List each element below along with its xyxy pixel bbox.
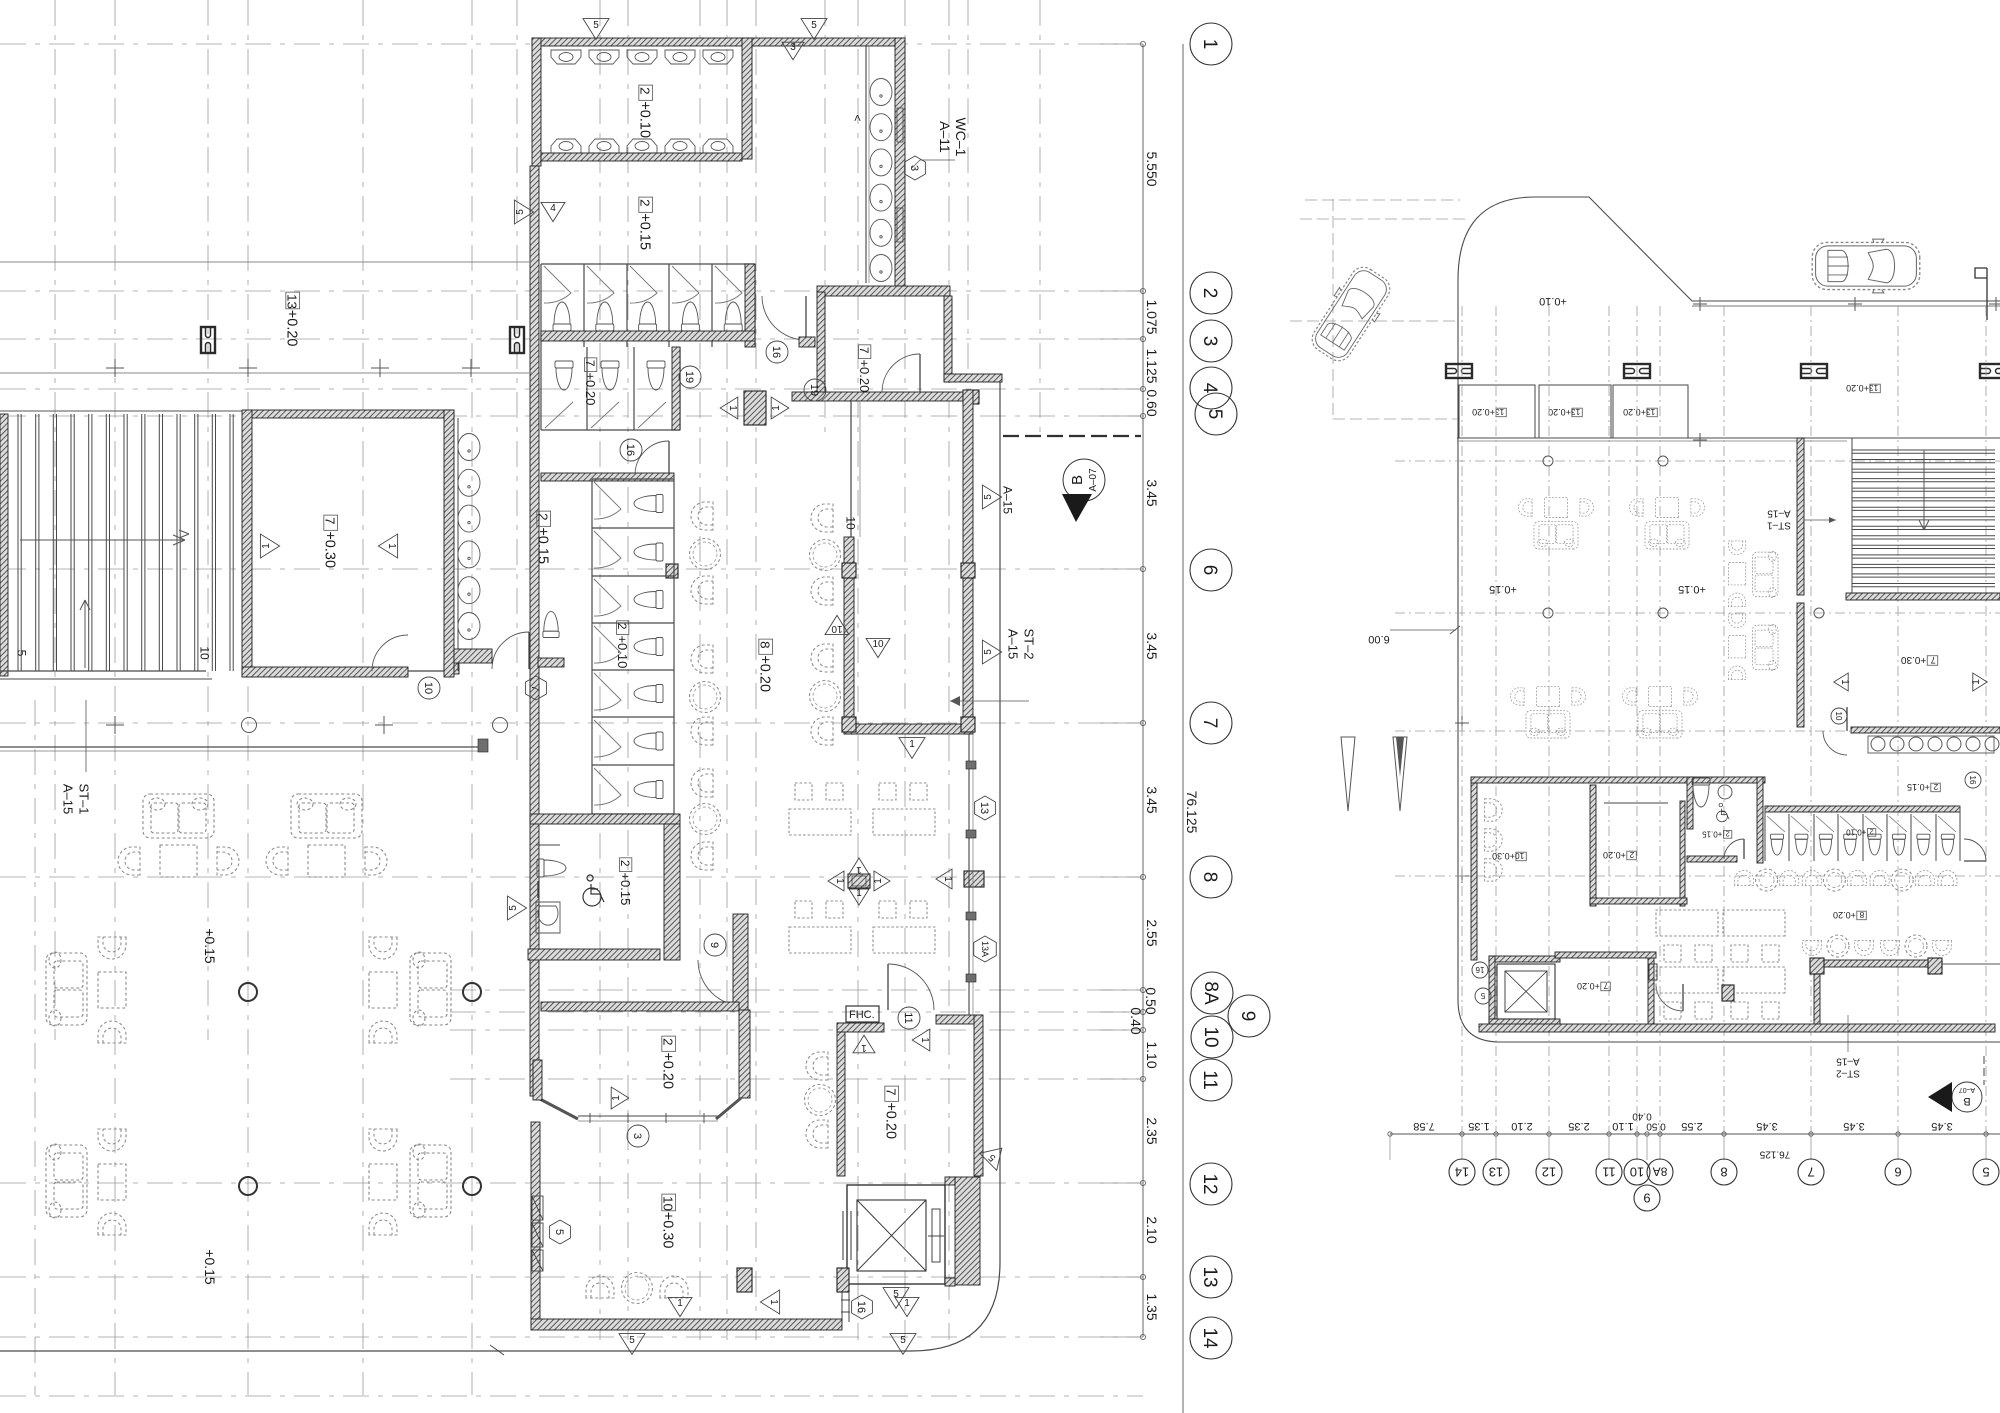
svg-text:A–07: A–07 xyxy=(1088,468,1099,492)
svg-text:0.40: 0.40 xyxy=(1632,1110,1652,1121)
svg-text:1: 1 xyxy=(768,1299,779,1305)
svg-text:6.00: 6.00 xyxy=(1368,633,1389,645)
svg-text:+0.30: +0.30 xyxy=(1901,654,1927,665)
svg-text:76.125: 76.125 xyxy=(1759,1148,1790,1159)
svg-text:2: 2 xyxy=(615,623,629,630)
svg-text:1: 1 xyxy=(873,878,884,884)
svg-text:+0.15: +0.15 xyxy=(1678,583,1706,595)
svg-text:6: 6 xyxy=(1199,565,1220,576)
svg-text:1: 1 xyxy=(727,405,738,411)
svg-text:2: 2 xyxy=(1199,288,1220,299)
svg-text:2: 2 xyxy=(660,1038,675,1045)
svg-text:WC–1: WC–1 xyxy=(953,118,969,157)
svg-text:5: 5 xyxy=(983,494,994,500)
svg-text:6: 6 xyxy=(1894,1164,1901,1179)
svg-text:16: 16 xyxy=(1475,965,1484,974)
svg-text:+0.30: +0.30 xyxy=(659,1212,675,1249)
svg-text:9: 9 xyxy=(1237,1011,1258,1022)
svg-text:16: 16 xyxy=(855,1301,867,1313)
svg-text:+0.20: +0.20 xyxy=(1833,910,1856,920)
svg-text:8A: 8A xyxy=(1200,981,1221,1005)
svg-text:19: 19 xyxy=(683,371,695,383)
svg-text:+0.15: +0.15 xyxy=(618,872,633,905)
svg-text:1.10: 1.10 xyxy=(1144,1041,1160,1068)
svg-text:1: 1 xyxy=(1839,679,1850,685)
svg-text:7: 7 xyxy=(1199,718,1220,729)
svg-text:7: 7 xyxy=(529,685,541,691)
svg-text:2.55: 2.55 xyxy=(1144,919,1160,946)
svg-text:+0.20: +0.20 xyxy=(283,310,299,347)
svg-text:+0.10: +0.10 xyxy=(615,635,630,668)
svg-text:3.45: 3.45 xyxy=(1843,1120,1864,1132)
svg-text:1.35: 1.35 xyxy=(1468,1120,1489,1132)
svg-text:3: 3 xyxy=(1199,336,1220,347)
svg-text:A–15: A–15 xyxy=(1005,629,1020,659)
svg-text:10: 10 xyxy=(1834,712,1843,721)
svg-text:5: 5 xyxy=(593,20,599,31)
svg-text:1.35: 1.35 xyxy=(1144,1293,1160,1320)
svg-text:A–11: A–11 xyxy=(937,121,953,153)
svg-text:1: 1 xyxy=(1971,679,1982,685)
svg-text:1: 1 xyxy=(261,543,272,549)
svg-text:7: 7 xyxy=(1603,981,1608,990)
svg-text:10: 10 xyxy=(1200,1026,1221,1047)
svg-text:3: 3 xyxy=(631,1133,643,1139)
svg-text:3: 3 xyxy=(790,42,796,53)
svg-text:<: < xyxy=(851,114,865,121)
svg-text:+0.15: +0.15 xyxy=(534,527,550,564)
svg-text:13: 13 xyxy=(1646,407,1656,416)
svg-text:2: 2 xyxy=(535,513,550,520)
svg-text:+0.20: +0.20 xyxy=(756,655,772,692)
svg-text:16: 16 xyxy=(770,346,782,358)
svg-text:8: 8 xyxy=(1199,872,1220,883)
svg-text:A–15: A–15 xyxy=(60,784,75,814)
svg-text:8: 8 xyxy=(1859,910,1864,919)
svg-text:+0.20: +0.20 xyxy=(583,372,598,405)
svg-text:5: 5 xyxy=(1480,991,1485,1000)
svg-text:2: 2 xyxy=(1933,782,1938,791)
svg-text:13: 13 xyxy=(1199,1266,1220,1287)
svg-text:3.45: 3.45 xyxy=(1144,786,1160,813)
svg-text:+0.30: +0.30 xyxy=(321,531,337,568)
svg-text:2.10: 2.10 xyxy=(1511,1120,1532,1132)
svg-text:+0.15: +0.15 xyxy=(202,928,218,964)
svg-text:1: 1 xyxy=(861,1042,867,1053)
svg-text:+0.10: +0.10 xyxy=(1539,295,1567,307)
svg-text:+0.15: +0.15 xyxy=(202,1249,218,1285)
svg-text:5: 5 xyxy=(508,905,519,911)
svg-text:10: 10 xyxy=(422,682,434,694)
svg-text:10: 10 xyxy=(198,646,212,660)
svg-text:A–07: A–07 xyxy=(1959,1086,1975,1093)
svg-text:+0.20: +0.20 xyxy=(1603,850,1626,860)
svg-text:1: 1 xyxy=(677,1298,683,1309)
svg-text:13: 13 xyxy=(284,294,299,309)
svg-text:1: 1 xyxy=(942,876,953,882)
svg-text:2.55: 2.55 xyxy=(1681,1120,1702,1132)
svg-text:0.40: 0.40 xyxy=(1128,1007,1144,1034)
svg-text:3.45: 3.45 xyxy=(1144,632,1160,659)
svg-text:1: 1 xyxy=(909,739,915,750)
svg-text:FHC.: FHC. xyxy=(849,1009,875,1021)
svg-text:+0.15: +0.15 xyxy=(636,213,652,250)
svg-text:5: 5 xyxy=(983,649,994,655)
svg-text:14: 14 xyxy=(1199,1327,1220,1349)
svg-text:B: B xyxy=(1963,1095,1970,1107)
svg-text:7: 7 xyxy=(883,1088,898,1095)
svg-text:+0.20: +0.20 xyxy=(659,1052,675,1089)
svg-text:16: 16 xyxy=(1968,776,1977,785)
svg-text:14: 14 xyxy=(1455,1164,1469,1179)
svg-text:7: 7 xyxy=(857,347,871,354)
svg-text:2: 2 xyxy=(618,860,632,867)
svg-text:10: 10 xyxy=(660,1196,675,1211)
svg-text:2.10: 2.10 xyxy=(1144,1216,1160,1243)
svg-text:10: 10 xyxy=(1630,1164,1644,1179)
svg-text:1: 1 xyxy=(904,1298,910,1309)
svg-text:5: 5 xyxy=(1982,1164,1989,1179)
svg-text:7: 7 xyxy=(583,360,597,367)
svg-text:1: 1 xyxy=(1199,39,1220,50)
svg-text:8: 8 xyxy=(1720,1164,1727,1179)
svg-text:2: 2 xyxy=(637,199,652,206)
svg-text:5: 5 xyxy=(629,1335,635,1346)
svg-text:2: 2 xyxy=(1629,850,1634,859)
svg-text:3.45: 3.45 xyxy=(1756,1120,1777,1132)
svg-text:12: 12 xyxy=(1542,1164,1556,1179)
svg-text:12: 12 xyxy=(1199,1173,1220,1194)
svg-text:+0.20: +0.20 xyxy=(1472,407,1495,417)
svg-text:1: 1 xyxy=(611,1095,622,1101)
svg-text:0.50: 0.50 xyxy=(1646,1120,1666,1131)
svg-text:2: 2 xyxy=(1870,827,1874,836)
svg-text:8: 8 xyxy=(757,641,772,648)
svg-text:A–15: A–15 xyxy=(1836,1055,1860,1066)
svg-text:5: 5 xyxy=(811,20,817,31)
svg-text:1: 1 xyxy=(856,864,862,875)
svg-text:19: 19 xyxy=(808,384,820,396)
svg-text:10: 10 xyxy=(844,516,858,530)
svg-text:5: 5 xyxy=(553,1229,565,1235)
svg-text:ST–1: ST–1 xyxy=(76,783,91,814)
svg-text:+0.20: +0.20 xyxy=(1623,407,1646,417)
svg-text:5: 5 xyxy=(1204,409,1225,420)
svg-text:2: 2 xyxy=(637,87,652,94)
svg-text:11: 11 xyxy=(902,1012,914,1023)
svg-text:1.10: 1.10 xyxy=(1612,1120,1633,1132)
svg-text:1: 1 xyxy=(856,888,862,899)
svg-text:1: 1 xyxy=(386,543,397,549)
svg-text:9: 9 xyxy=(708,942,720,948)
svg-text:13: 13 xyxy=(1489,1164,1503,1179)
svg-text:2: 2 xyxy=(1726,829,1730,838)
svg-text:3: 3 xyxy=(908,165,920,171)
svg-text:13: 13 xyxy=(978,802,990,814)
svg-text:76.125: 76.125 xyxy=(1184,791,1200,834)
svg-text:5: 5 xyxy=(900,1335,906,1346)
svg-text:10: 10 xyxy=(831,623,843,634)
svg-text:10: 10 xyxy=(1515,851,1525,860)
svg-text:3.45: 3.45 xyxy=(1931,1120,1952,1132)
svg-text:2.35: 2.35 xyxy=(1568,1120,1589,1132)
svg-text:5: 5 xyxy=(515,209,526,215)
svg-text:4: 4 xyxy=(550,203,556,214)
svg-text:16: 16 xyxy=(624,444,636,456)
svg-text:8A: 8A xyxy=(1653,1165,1668,1179)
svg-text:1.125: 1.125 xyxy=(1144,348,1160,383)
svg-text:13A: 13A xyxy=(980,941,990,957)
svg-text:5: 5 xyxy=(15,650,29,657)
svg-text:+0.20: +0.20 xyxy=(1846,383,1869,393)
svg-text:7.58: 7.58 xyxy=(1413,1120,1434,1132)
svg-text:+0.15: +0.15 xyxy=(1489,583,1517,595)
svg-text:4: 4 xyxy=(1199,383,1220,394)
svg-text:+0.10: +0.10 xyxy=(636,101,652,138)
svg-text:+0.10: +0.10 xyxy=(1846,827,1867,836)
svg-text:2.35: 2.35 xyxy=(1144,1117,1160,1144)
svg-text:+0.20: +0.20 xyxy=(882,1102,898,1139)
svg-text:11: 11 xyxy=(1602,1164,1616,1179)
svg-text:1: 1 xyxy=(834,878,845,884)
svg-text:5.550: 5.550 xyxy=(1144,151,1160,186)
svg-text:A–15: A–15 xyxy=(1001,486,1015,514)
svg-text:+0.20: +0.20 xyxy=(857,359,872,392)
svg-text:7: 7 xyxy=(322,517,337,524)
svg-text:1: 1 xyxy=(771,405,782,411)
svg-text:+0.20: +0.20 xyxy=(1548,407,1571,417)
svg-text:3.45: 3.45 xyxy=(1144,479,1160,506)
svg-text:A–15: A–15 xyxy=(1767,507,1791,518)
svg-text:11: 11 xyxy=(1199,1070,1220,1090)
svg-text:1.075: 1.075 xyxy=(1144,299,1160,334)
svg-text:ST–2: ST–2 xyxy=(1836,1067,1860,1078)
svg-text:+0.20: +0.20 xyxy=(1577,981,1600,991)
svg-text:5: 5 xyxy=(893,1289,899,1300)
svg-text:ST–2: ST–2 xyxy=(1021,628,1036,659)
svg-text:1: 1 xyxy=(919,1037,930,1043)
svg-text:ST–1: ST–1 xyxy=(1767,519,1791,530)
svg-text:7: 7 xyxy=(1807,1164,1814,1179)
svg-text:0.50: 0.50 xyxy=(1143,987,1159,1014)
svg-text:+0.15: +0.15 xyxy=(1907,782,1930,792)
svg-text:13: 13 xyxy=(1571,407,1581,416)
svg-text:B: B xyxy=(1069,475,1086,485)
svg-text:13: 13 xyxy=(1869,383,1879,392)
svg-text:0.60: 0.60 xyxy=(1144,389,1160,416)
svg-text:9: 9 xyxy=(1643,1190,1650,1205)
svg-text:7: 7 xyxy=(1931,655,1936,665)
svg-text:+0.30: +0.30 xyxy=(1492,851,1515,861)
svg-text:+0.15: +0.15 xyxy=(1702,829,1723,838)
svg-text:10: 10 xyxy=(872,639,884,650)
